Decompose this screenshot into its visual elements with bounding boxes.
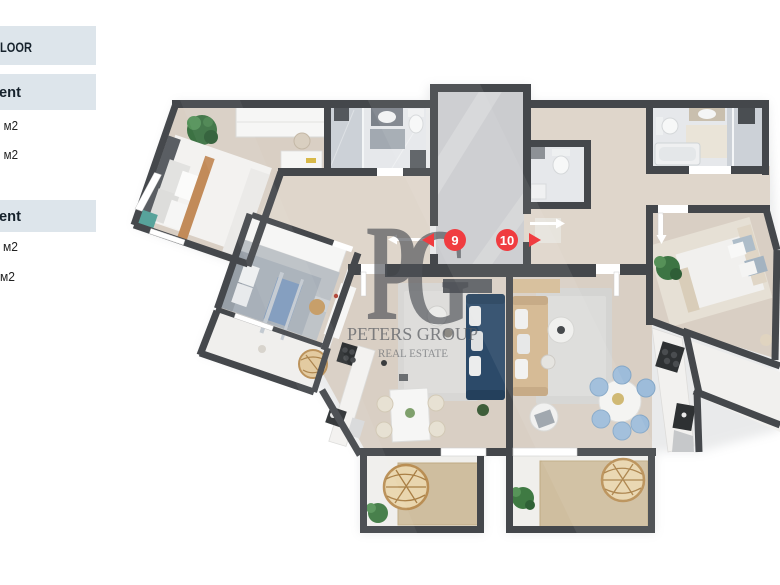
svg-text:5 м2: 5 м2	[0, 239, 18, 254]
svg-text:LOOR: LOOR	[0, 39, 32, 55]
svg-text:9: 9	[451, 233, 458, 248]
svg-text:10: 10	[500, 233, 514, 248]
svg-text:ent: ent	[0, 84, 21, 101]
svg-text:ent: ent	[0, 208, 21, 225]
svg-text:3 м2: 3 м2	[0, 147, 18, 162]
svg-text:PETERS GROUP: PETERS GROUP	[347, 324, 478, 344]
svg-text:2 м2: 2 м2	[0, 118, 18, 133]
svg-text:1 м2: 1 м2	[0, 269, 15, 284]
svg-text:REAL ESTATE: REAL ESTATE	[378, 346, 448, 360]
